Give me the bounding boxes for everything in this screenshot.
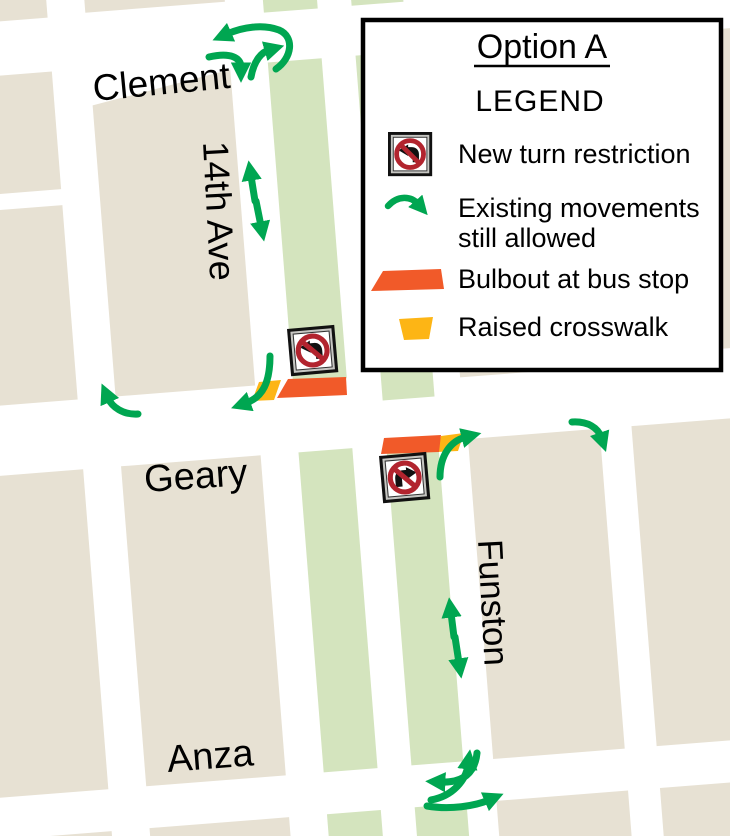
no-left-turn-sign-funston-geary [379, 452, 430, 503]
legend: Option A LEGEND New turn restriction Exi… [363, 20, 721, 370]
street-label-anza: Anza [165, 732, 256, 781]
city-block [80, 0, 224, 13]
crosswalk-swatch-icon [399, 317, 433, 340]
legend-item-existing-movements-line2: still allowed [458, 223, 596, 253]
greenway-strip [298, 448, 377, 772]
map-canvas: Clement 14th Ave Geary Funston Anza Opti… [0, 0, 730, 836]
movement-arrow-14th-north [251, 176, 255, 201]
city-block [150, 817, 299, 836]
no-left-turn-sign-14th-geary [287, 325, 338, 376]
greenway-strip [327, 810, 390, 836]
greenway-strip [258, 0, 318, 13]
legend-title: Option A [477, 28, 608, 66]
street-label-14th-ave: 14th Ave [195, 140, 243, 281]
city-block [0, 831, 121, 836]
legend-item-raised-crosswalk: Raised crosswalk [458, 312, 669, 342]
city-block [0, 469, 108, 803]
movement-arrow-funston-north [451, 613, 454, 637]
movement-arrow-clement-right [251, 50, 269, 77]
greenway-strip [346, 0, 404, 6]
no-left-turn-sign-icon [388, 132, 432, 176]
street-plan-map: Clement 14th Ave Geary Funston Anza Opti… [0, 0, 730, 836]
bulbout-funston-geary [381, 435, 441, 454]
city-block [0, 72, 61, 204]
bulbout-14th-geary [277, 377, 347, 398]
city-block [660, 773, 730, 836]
legend-heading: LEGEND [475, 85, 604, 118]
movement-arrow-funston-south [455, 637, 459, 663]
legend-item-turn-restriction: New turn restriction [458, 139, 691, 169]
legend-item-bulbout: Bulbout at bus stop [458, 264, 689, 294]
city-block [631, 411, 730, 746]
city-block [0, 205, 78, 414]
city-block [0, 0, 48, 32]
street-label-geary: Geary [143, 452, 249, 501]
street-label-funston: Funston [470, 538, 516, 666]
movement-arrow-14th-south [256, 201, 261, 226]
legend-item-existing-movements-line1: Existing movements [458, 193, 700, 223]
movement-arrow-geary-north [108, 398, 138, 414]
city-block [496, 791, 637, 836]
